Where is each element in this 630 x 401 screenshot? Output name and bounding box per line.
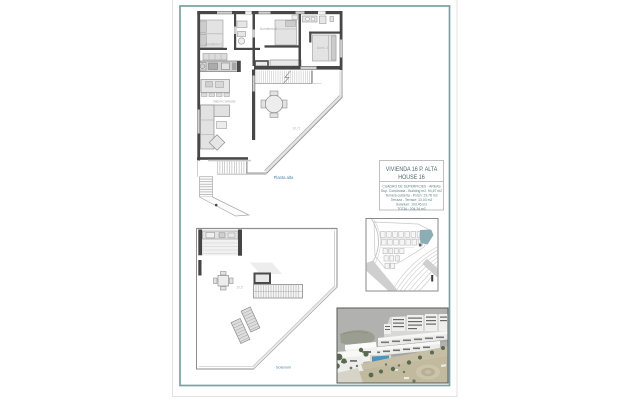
svg-text:VIVIENDA 16 P. ALTA: VIVIENDA 16 P. ALTA (386, 167, 438, 173)
svg-text:Salon-Comedor: Salon-Comedor (213, 100, 236, 104)
svg-text:10,71: 10,71 (293, 127, 301, 131)
svg-text:Planta alta: Planta alta (274, 175, 294, 180)
svg-text:Dormitorio 1: Dormitorio 1 (205, 43, 223, 47)
svg-text:HOUSE 16: HOUSE 16 (398, 175, 425, 181)
svg-text:Dorm. 3: Dorm. 3 (317, 46, 329, 50)
svg-text:Dormitorio 2: Dormitorio 2 (260, 27, 278, 31)
svg-text:Solarium: Solarium (276, 365, 291, 370)
svg-text:Terraza - Terrace: 13,03 m2: Terraza - Terrace: 13,03 m2 (391, 198, 433, 202)
svg-text:CUADRO DE SUPERFICIES - AREAS: CUADRO DE SUPERFICIES - AREAS (382, 184, 441, 188)
svg-text:20,5: 20,5 (236, 286, 242, 290)
svg-text:TOTAL: 204,34 m2: TOTAL: 204,34 m2 (397, 207, 426, 211)
svg-text:Sup. Construida - Building m2:: Sup. Construida - Building m2: 94,67 m2 (381, 189, 442, 193)
svg-text:Solarium: 103,46 m2: Solarium: 103,46 m2 (396, 202, 427, 206)
svg-text:Terraza cubierta - Porch: 23,7: Terraza cubierta - Porch: 23,78 m2 (385, 193, 437, 197)
